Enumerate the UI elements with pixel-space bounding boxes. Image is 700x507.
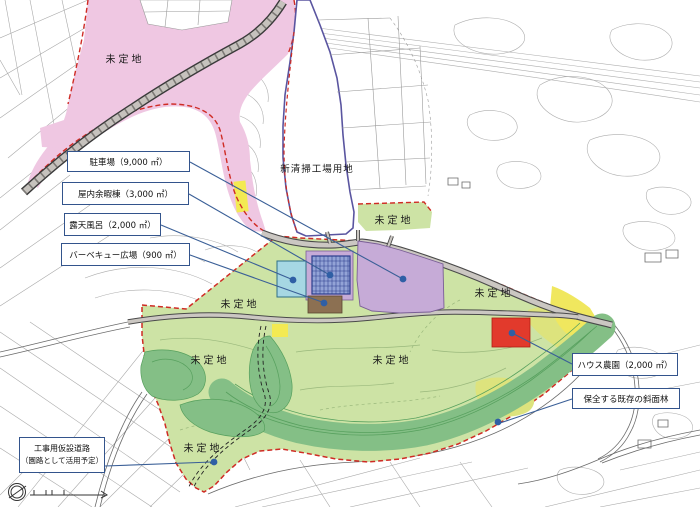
callout-bbq-plaza: バーベキュー広場（900 ㎡）	[61, 243, 190, 266]
callout-preserved-slope-forest: 保全する既存の斜面林	[572, 388, 680, 409]
undetermined-label-2: 未定地	[375, 212, 414, 227]
yellow-square	[272, 324, 288, 337]
undetermined-label-1: 未定地	[106, 51, 145, 66]
callout-house-farm: ハウス農園（2,000 ㎡）	[572, 353, 678, 376]
undetermined-label-5: 未定地	[191, 352, 230, 367]
construction-road-line2: （園路として活用予定）	[21, 455, 103, 466]
cleaning-plant-site	[283, 0, 354, 236]
undetermined-label-7: 未定地	[184, 440, 223, 455]
callout-open-air-bath: 露天風呂（2,000 ㎡）	[64, 213, 161, 236]
callout-construction-road: 工事用仮設道路 （園路として活用予定）	[19, 437, 105, 473]
undetermined-label-4: 未定地	[475, 285, 514, 300]
undetermined-label-3: 未定地	[221, 296, 260, 311]
construction-road-line1: 工事用仮設道路	[34, 443, 90, 455]
map-scale-symbol	[9, 484, 108, 501]
undetermined-label-6: 未定地	[373, 352, 412, 367]
site-plan-map: 未定地 未定地 未定地 未定地 未定地 未定地 未定地 新清掃工場用地 駐車場（…	[0, 0, 700, 507]
cleaning-plant-site-label: 新清掃工場用地	[280, 161, 354, 175]
callout-indoor-leisure: 屋内余暇棟（3,000 ㎡）	[62, 182, 189, 205]
callout-parking: 駐車場（9,000 ㎡）	[67, 151, 190, 172]
